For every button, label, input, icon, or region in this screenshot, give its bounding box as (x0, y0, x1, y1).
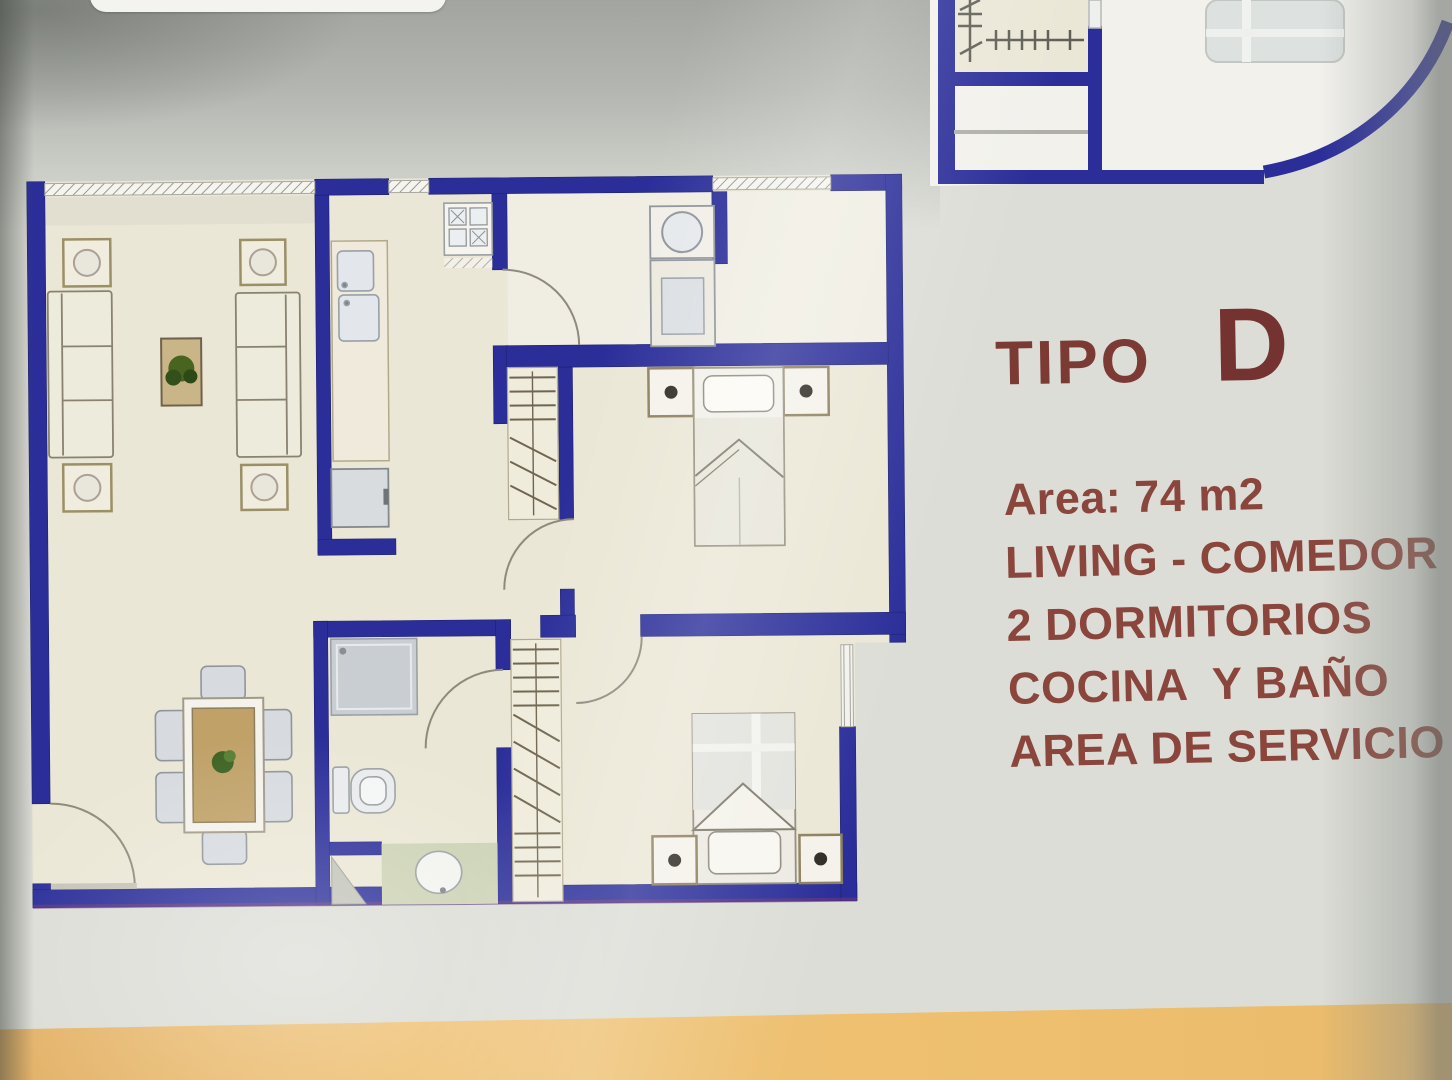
bed-icon (692, 713, 795, 884)
toilet-icon (333, 767, 395, 814)
photo-shadow-left (0, 0, 34, 1080)
plant-icon (161, 338, 202, 405)
laundry-tub-icon (650, 260, 715, 347)
bed-icon (693, 367, 785, 546)
shower-icon (331, 638, 418, 715)
orange-band (0, 1002, 1452, 1080)
plan-type-label: TIPO (995, 326, 1153, 400)
refrigerator-icon (331, 469, 389, 527)
service-area (650, 206, 715, 347)
plan-title: TIPO D (994, 285, 1290, 409)
photo-shadow-topleft (0, 0, 520, 150)
closet-hangers-icon (507, 367, 558, 519)
closet-hangers-icon (511, 639, 563, 901)
bathroom-sink-icon (416, 851, 462, 893)
plan-type-letter: D (1213, 285, 1290, 405)
stove-icon (444, 203, 493, 268)
white-card-top-edge (90, 0, 446, 12)
photo-shadow-right (1320, 0, 1452, 1080)
main-floor-plan (25, 166, 912, 949)
kitchen-sink-icon (337, 251, 379, 341)
brochure-photo: TIPO D Area: 74 m2 LIVING - COMEDOR 2 DO… (0, 0, 1452, 1080)
washing-machine-icon (650, 206, 714, 259)
dining-table-icon (183, 698, 264, 833)
